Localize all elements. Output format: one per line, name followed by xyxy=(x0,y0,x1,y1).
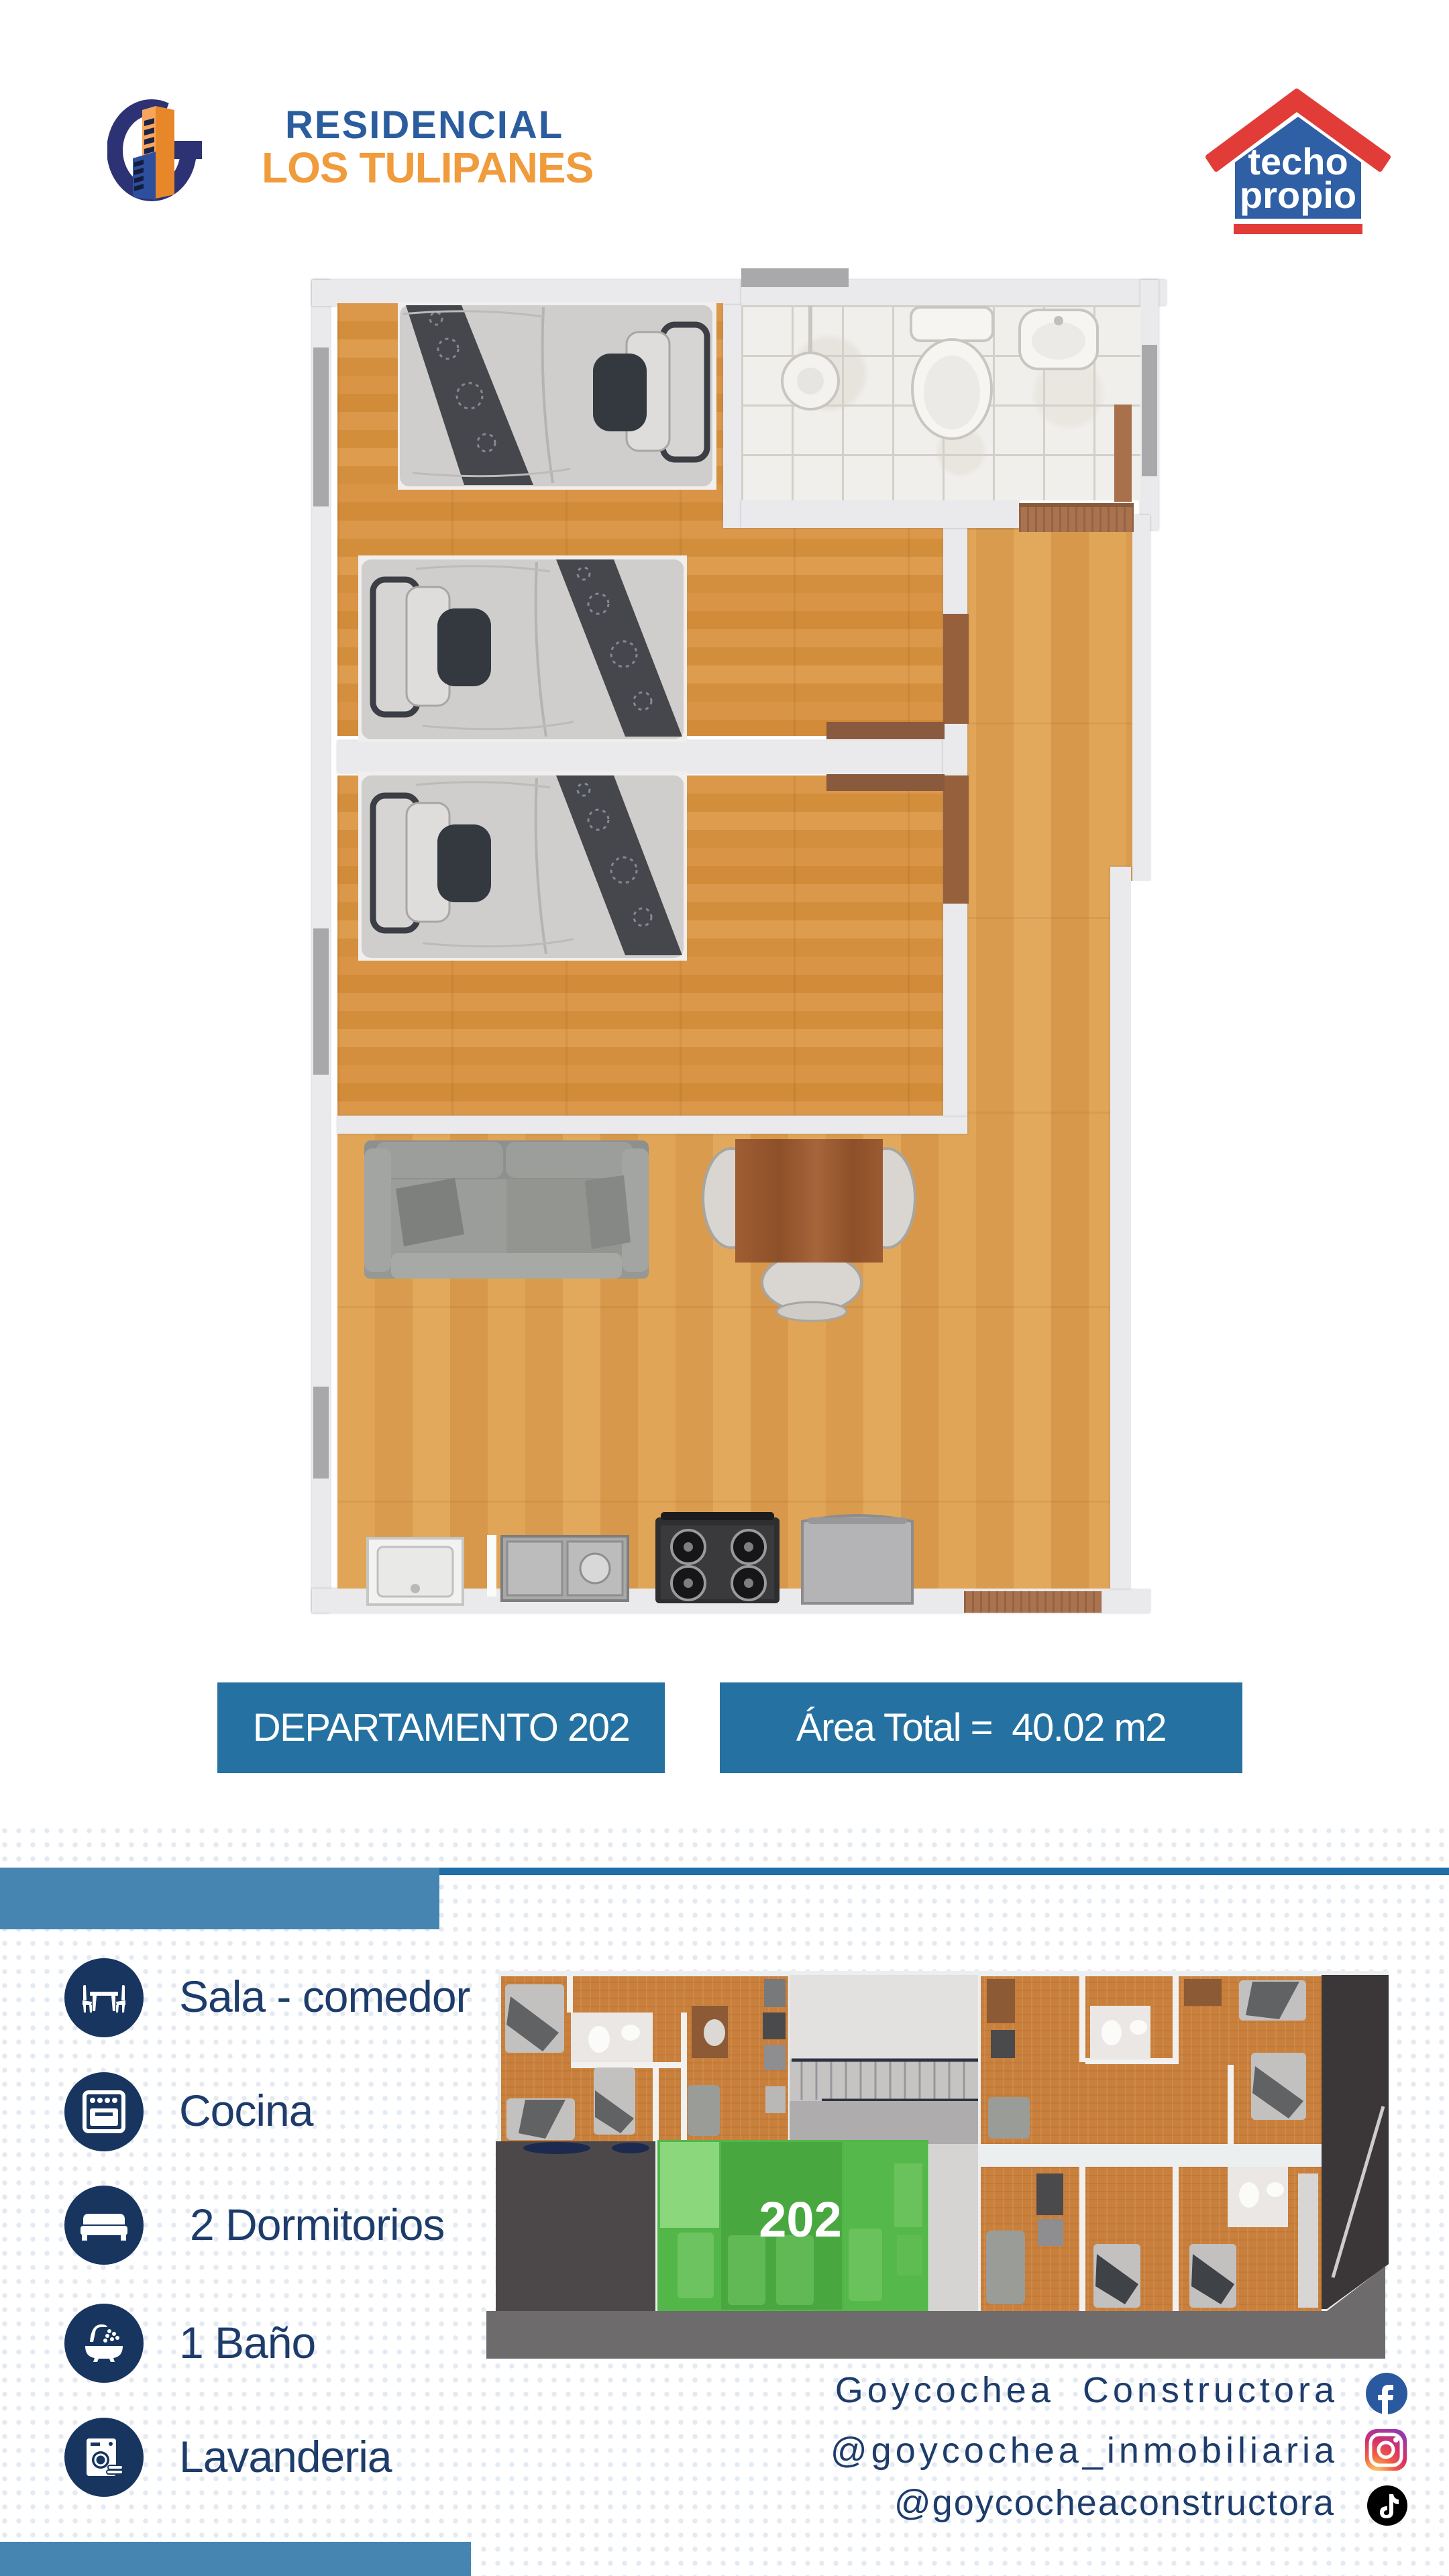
svg-text:202: 202 xyxy=(759,2192,841,2247)
